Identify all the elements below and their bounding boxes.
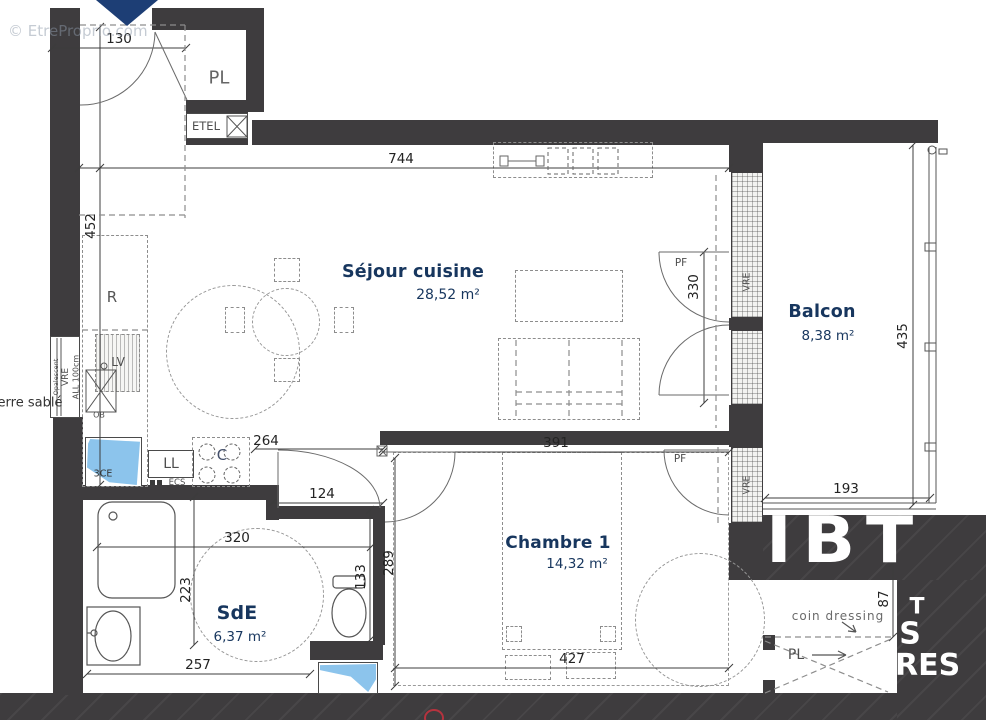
dim-391: 391 <box>543 435 569 451</box>
room-area-chambre: 14,32 m² <box>546 556 608 572</box>
dim-133: 133 <box>353 564 369 590</box>
red-mark <box>424 709 444 720</box>
radiator-icon <box>500 148 618 174</box>
label-vre-chambre: VRE <box>742 475 753 494</box>
big-watermark-letters: IBT <box>766 510 924 578</box>
room-area-sejour: 28,52 m² <box>416 287 480 303</box>
dressing-arrows <box>812 622 856 659</box>
label-ecs: ECS <box>169 478 186 488</box>
room-area-sde: 6,37 m² <box>214 629 267 645</box>
label-opalescent: Opalescent <box>52 359 60 396</box>
label-pl-dressing: PL <box>788 647 804 663</box>
room-area-balcon: 8,38 m² <box>802 328 855 344</box>
label-coin-dressing: coin dressing <box>792 609 884 623</box>
watermark-frag-res: RES <box>895 648 960 683</box>
label-ob: OB <box>93 411 105 420</box>
room-label-sde: SdE <box>217 602 258 624</box>
label-etel: ETEL <box>192 119 220 133</box>
ecs-square-1 <box>150 480 155 485</box>
label-3ce: 3CE <box>94 469 113 480</box>
dim-320: 320 <box>224 530 250 546</box>
shower-icon <box>98 502 175 598</box>
dim-744: 744 <box>388 151 414 167</box>
dim-264: 264 <box>253 433 279 449</box>
label-all100: ALL 100cm <box>72 355 81 399</box>
room-label-balcon: Balcon <box>788 302 855 322</box>
dim-124: 124 <box>309 486 335 502</box>
dim-193: 193 <box>830 481 862 497</box>
balcony-railing <box>763 146 947 509</box>
ecs-square-2 <box>157 480 162 485</box>
dim-452: 452 <box>83 213 99 239</box>
big-watermark-clip: IBT <box>762 510 986 580</box>
washbasin-icon <box>87 607 140 665</box>
label-fridge: R <box>107 288 117 306</box>
dim-427: 427 <box>559 651 585 667</box>
label-verre-sable: erre sablé <box>0 396 62 411</box>
label-cooktop: C <box>217 446 227 464</box>
label-vre-left: VRE <box>61 368 71 386</box>
label-pl-closet: PL <box>209 68 230 89</box>
dim-87: 87 <box>876 590 892 607</box>
room-label-chambre: Chambre 1 <box>505 533 610 553</box>
dim-289: 289 <box>381 550 397 576</box>
label-vre-sejour: VRE <box>742 272 753 291</box>
etel-cross-icon <box>227 116 247 137</box>
dim-257: 257 <box>185 657 211 673</box>
dim-223: 223 <box>178 577 194 603</box>
dim-435: 435 <box>895 323 911 349</box>
label-dishwasher: LV <box>111 355 125 369</box>
room-label-sejour: Séjour cuisine <box>342 262 484 282</box>
kitchen-sink-icon <box>86 363 116 412</box>
floor-plan: Séjour cuisine 28,52 m² Balcon 8,38 m² C… <box>0 0 986 720</box>
watermark-frag-s: S <box>899 617 921 652</box>
label-pf-chambre: PF <box>674 453 686 465</box>
label-pf-sejour: PF <box>675 257 687 269</box>
label-ll: LL <box>163 456 179 472</box>
dim-330: 330 <box>686 274 702 300</box>
